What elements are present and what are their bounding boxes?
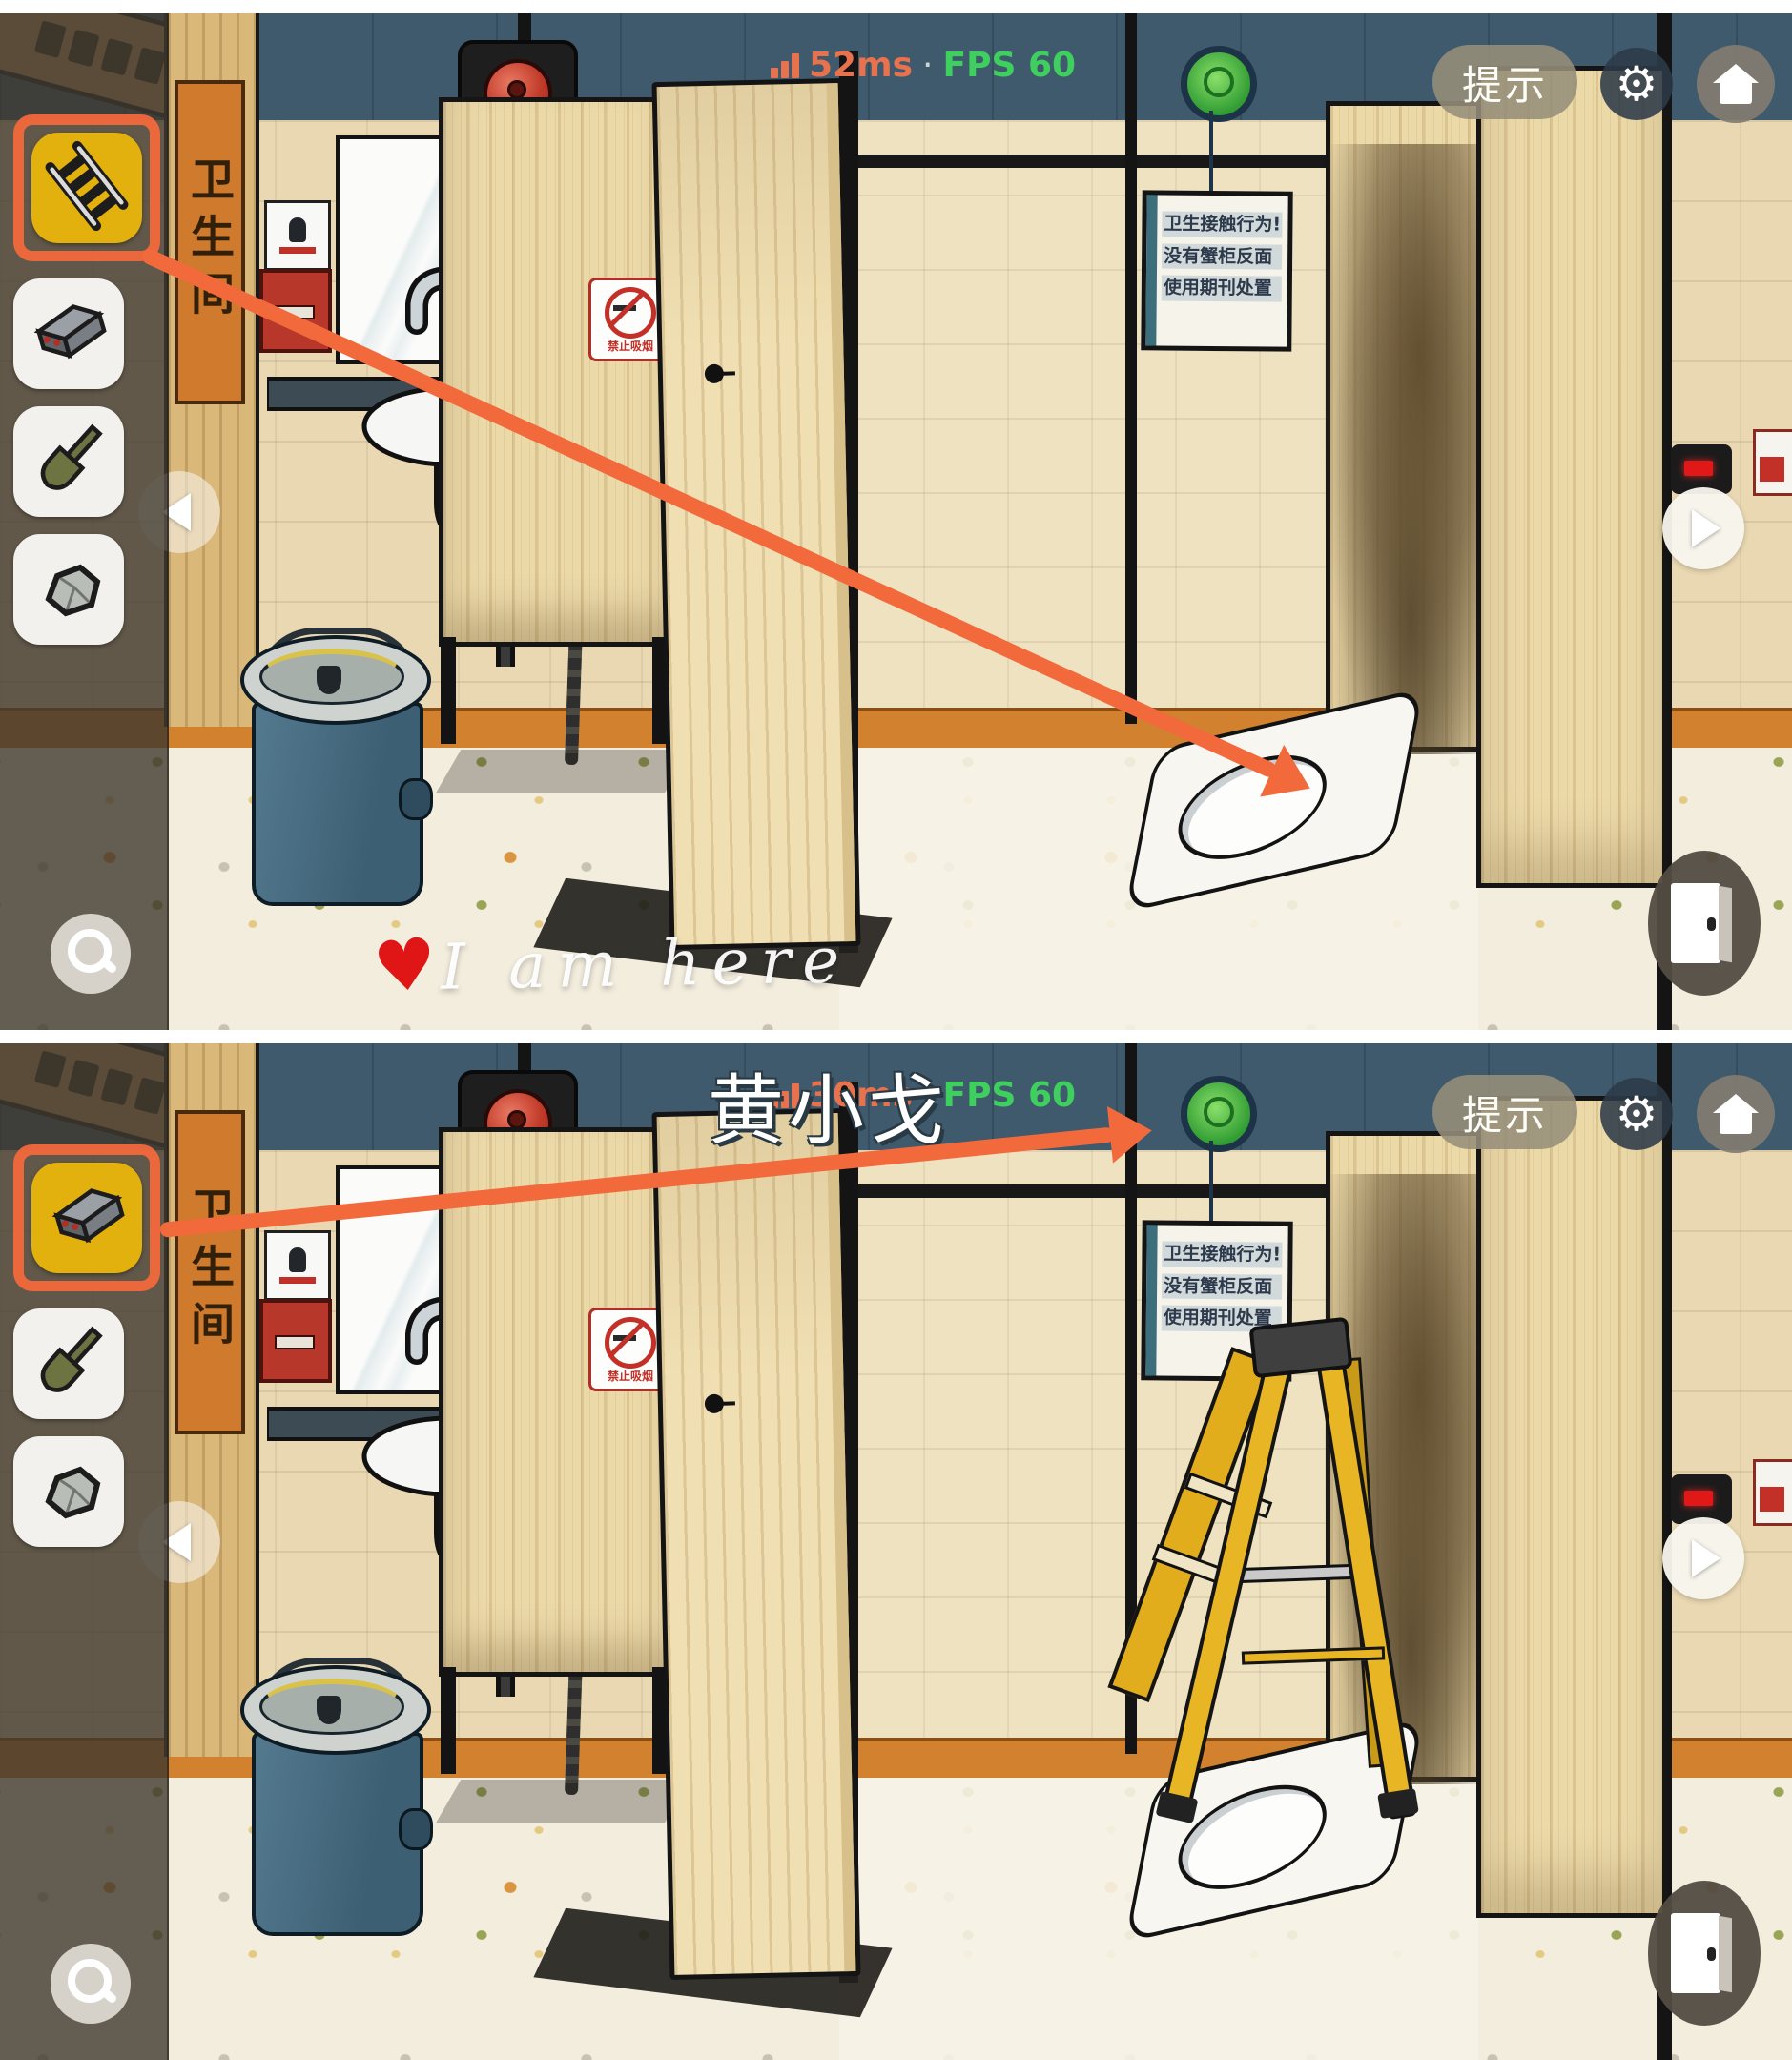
stone-icon bbox=[23, 1444, 114, 1539]
stall-partition bbox=[439, 1127, 679, 1677]
signal-bars-icon bbox=[771, 53, 799, 78]
player-name-label: 黄小戈 bbox=[708, 1049, 948, 1160]
edge-sign bbox=[1753, 429, 1792, 496]
matchbox-icon bbox=[41, 1170, 133, 1266]
shovel-icon bbox=[23, 414, 114, 509]
search-button[interactable] bbox=[51, 1944, 131, 2024]
floor-shadow bbox=[436, 750, 690, 793]
green-wall-button[interactable] bbox=[1181, 1076, 1257, 1152]
ping-value: 52ms bbox=[809, 46, 913, 85]
wall-notice-sign[interactable]: 卫生接触行为! 没有蟹柜反面 使用期刊处置 bbox=[1141, 190, 1292, 351]
search-icon-handle bbox=[99, 1987, 118, 2004]
door-icon-knob bbox=[1707, 1947, 1716, 1961]
settings-button[interactable]: ⚙ bbox=[1600, 48, 1673, 120]
watermark-heart: ♥ bbox=[370, 928, 441, 1005]
basket-center bbox=[317, 666, 341, 694]
restroom-sign[interactable]: 卫生间 bbox=[175, 1110, 245, 1434]
exit-door-button[interactable] bbox=[1648, 1881, 1761, 2026]
no-smoking-icon bbox=[605, 287, 656, 339]
gear-icon: ⚙ bbox=[1616, 56, 1658, 112]
red-text-line bbox=[279, 1277, 316, 1284]
bucket-body bbox=[252, 702, 423, 906]
right-arrow-icon bbox=[1692, 509, 1720, 547]
notice-line: 卫生接触行为! bbox=[1162, 1241, 1282, 1267]
gear-icon: ⚙ bbox=[1616, 1086, 1658, 1142]
restroom-sign[interactable]: 卫生间 bbox=[175, 80, 245, 404]
right-arrow-icon bbox=[1692, 1539, 1720, 1577]
no-smoking-label: 禁止吸烟 bbox=[608, 1370, 653, 1382]
game-scene-panel: 卫生间 禁止吸烟 卫生接触行为! 没有蟹柜反面 使用期刊处置 bbox=[0, 1043, 1792, 2060]
inventory-item-stone[interactable] bbox=[13, 1436, 124, 1547]
notice-line: 没有蟹柜反面 bbox=[1162, 1273, 1282, 1300]
bucket-body bbox=[252, 1732, 423, 1936]
partition-leg bbox=[441, 637, 456, 744]
inventory-item-shovel[interactable] bbox=[13, 406, 124, 517]
notice-line: 卫生接触行为! bbox=[1162, 211, 1282, 237]
partition-leg bbox=[441, 1667, 456, 1774]
hint-button[interactable]: 提示 bbox=[1432, 45, 1577, 119]
red-block bbox=[1760, 457, 1784, 482]
door-icon-flap bbox=[1719, 1916, 1732, 1992]
inventory-item-matchbox[interactable] bbox=[13, 278, 124, 389]
game-scene-panel: 卫生间 禁止吸烟 卫生接触行为! 没有蟹柜反面 使用期刊处置 bbox=[0, 13, 1792, 1030]
no-smoking-label: 禁止吸烟 bbox=[608, 340, 653, 352]
performance-hud: 52ms · FPS 60 bbox=[771, 46, 1076, 85]
button-wire bbox=[1209, 1141, 1213, 1223]
stained-partition[interactable] bbox=[1326, 101, 1486, 752]
inventory-item-shovel[interactable] bbox=[13, 1308, 124, 1419]
bell-center bbox=[507, 1110, 526, 1129]
inventory bbox=[13, 1144, 164, 1547]
mop-bucket[interactable] bbox=[240, 635, 431, 910]
search-icon-handle bbox=[99, 957, 118, 974]
hud-separator: · bbox=[922, 46, 933, 85]
home-icon-body bbox=[1720, 83, 1752, 104]
ladder-top-cap bbox=[1248, 1317, 1352, 1379]
shovel-icon bbox=[23, 1316, 114, 1411]
selected-item-highlight bbox=[13, 114, 160, 261]
red-text-line bbox=[279, 247, 316, 254]
no-smoking-icon bbox=[605, 1317, 656, 1369]
green-wall-button[interactable] bbox=[1181, 46, 1257, 122]
inventory bbox=[13, 114, 164, 645]
door-icon-knob bbox=[1707, 917, 1716, 931]
matchbox-icon bbox=[23, 286, 114, 381]
home-icon bbox=[1713, 64, 1759, 83]
stall-partition bbox=[439, 97, 679, 647]
next-scene-button[interactable] bbox=[1662, 1517, 1744, 1599]
settings-button[interactable]: ⚙ bbox=[1600, 1078, 1673, 1150]
edge-sign bbox=[1753, 1459, 1792, 1526]
bucket-spout bbox=[399, 1808, 433, 1850]
home-icon-body bbox=[1720, 1113, 1752, 1134]
next-scene-button[interactable] bbox=[1662, 487, 1744, 569]
home-button[interactable] bbox=[1697, 1075, 1775, 1153]
bell-center bbox=[507, 80, 526, 99]
inventory-item-ladder[interactable] bbox=[31, 133, 142, 243]
fps-value: FPS 60 bbox=[943, 1076, 1077, 1115]
person-icon bbox=[289, 1247, 306, 1272]
stain-smudge bbox=[1325, 144, 1482, 754]
basket-center bbox=[317, 1696, 341, 1724]
notice-line: 没有蟹柜反面 bbox=[1162, 243, 1282, 270]
home-icon bbox=[1713, 1094, 1759, 1113]
notice-line: 使用期刊处置 bbox=[1162, 276, 1282, 302]
bucket-spout bbox=[399, 778, 433, 820]
button-wire bbox=[1209, 111, 1213, 193]
home-button[interactable] bbox=[1697, 45, 1775, 123]
open-stall-door[interactable] bbox=[651, 1108, 860, 1980]
right-stall-door[interactable] bbox=[1476, 1096, 1667, 1918]
open-stall-door[interactable] bbox=[651, 78, 860, 950]
exit-door-button[interactable] bbox=[1648, 851, 1761, 996]
red-display bbox=[1684, 1491, 1713, 1506]
frame-strip bbox=[1125, 13, 1137, 724]
person-icon bbox=[289, 217, 306, 242]
floor-shadow bbox=[436, 1780, 690, 1823]
stone-icon bbox=[23, 542, 114, 637]
red-display bbox=[1684, 461, 1713, 476]
ladder-icon bbox=[41, 140, 133, 236]
watermark-text: I am here bbox=[440, 923, 851, 1003]
keyhole-icon bbox=[705, 1394, 724, 1413]
inventory-item-stone[interactable] bbox=[13, 534, 124, 645]
hint-button[interactable]: 提示 bbox=[1432, 1075, 1577, 1149]
keyhole-icon bbox=[705, 364, 724, 383]
door-icon-flap bbox=[1719, 886, 1732, 962]
right-stall-door[interactable] bbox=[1476, 66, 1667, 888]
selected-item-highlight bbox=[13, 1144, 160, 1291]
fps-value: FPS 60 bbox=[943, 46, 1077, 85]
inventory-item-matchbox[interactable] bbox=[31, 1163, 142, 1273]
walkthrough-panels: 卫生间 禁止吸烟 卫生接触行为! 没有蟹柜反面 使用期刊处置 bbox=[0, 0, 1792, 2060]
mop-bucket[interactable] bbox=[240, 1665, 431, 1940]
search-button[interactable] bbox=[51, 914, 131, 994]
ladder-front-right-rail bbox=[1314, 1347, 1417, 1821]
red-block bbox=[1760, 1487, 1784, 1512]
ladder-in-scene[interactable] bbox=[1097, 1320, 1440, 1835]
